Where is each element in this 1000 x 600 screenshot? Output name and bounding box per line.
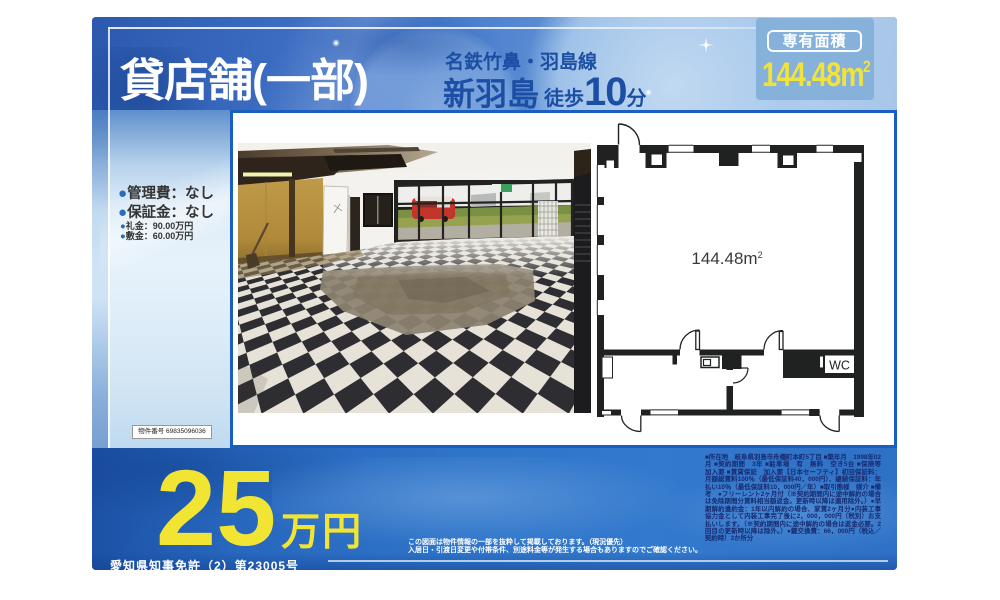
svg-text:144.48m2: 144.48m2 (691, 249, 762, 268)
svg-text:WC: WC (829, 359, 850, 373)
